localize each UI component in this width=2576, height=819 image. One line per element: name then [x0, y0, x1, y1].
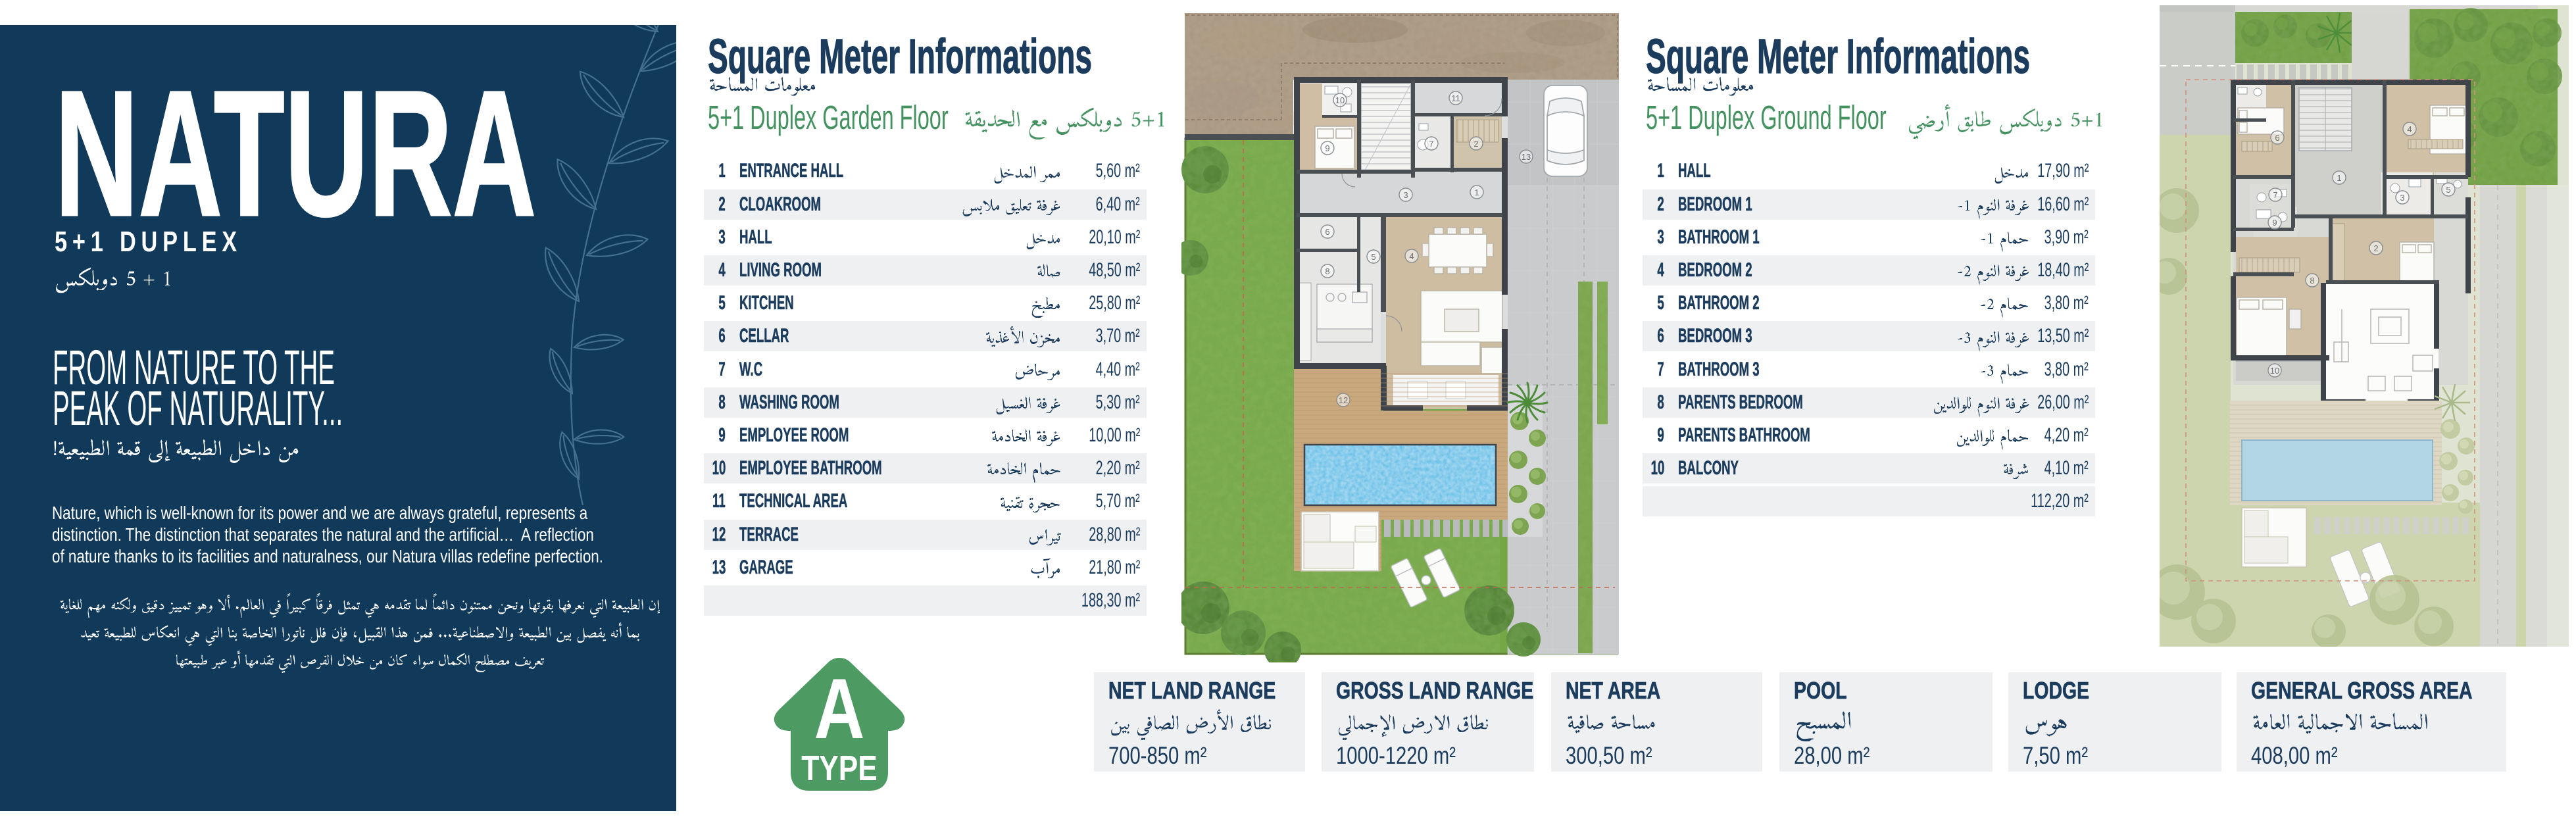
svg-text:9: 9 [2272, 218, 2277, 228]
svg-text:3: 3 [2400, 193, 2404, 203]
svg-text:10: 10 [1335, 95, 1345, 105]
svg-text:8: 8 [2310, 276, 2314, 285]
svg-text:4: 4 [1409, 251, 1414, 261]
svg-text:6: 6 [1325, 227, 1329, 237]
svg-text:12: 12 [1339, 395, 1348, 405]
svg-text:13: 13 [1522, 152, 1531, 162]
svg-text:1: 1 [1474, 187, 1479, 197]
svg-text:A: A [814, 661, 865, 757]
svg-text:3: 3 [1403, 190, 1408, 200]
svg-text:9: 9 [1325, 143, 1329, 153]
svg-text:1: 1 [2337, 173, 2341, 183]
svg-text:11: 11 [1451, 93, 1460, 103]
svg-text:2: 2 [2373, 243, 2378, 253]
svg-text:7: 7 [2273, 190, 2277, 200]
svg-text:2: 2 [1474, 139, 1478, 149]
svg-text:10: 10 [2270, 366, 2279, 376]
svg-text:8: 8 [1325, 266, 1329, 276]
svg-text:6: 6 [2275, 133, 2279, 143]
svg-text:4: 4 [2407, 124, 2412, 134]
svg-text:TYPE: TYPE [801, 749, 878, 788]
svg-text:5: 5 [2446, 185, 2450, 195]
svg-text:5: 5 [1371, 252, 1375, 262]
svg-text:7: 7 [1429, 139, 1433, 149]
